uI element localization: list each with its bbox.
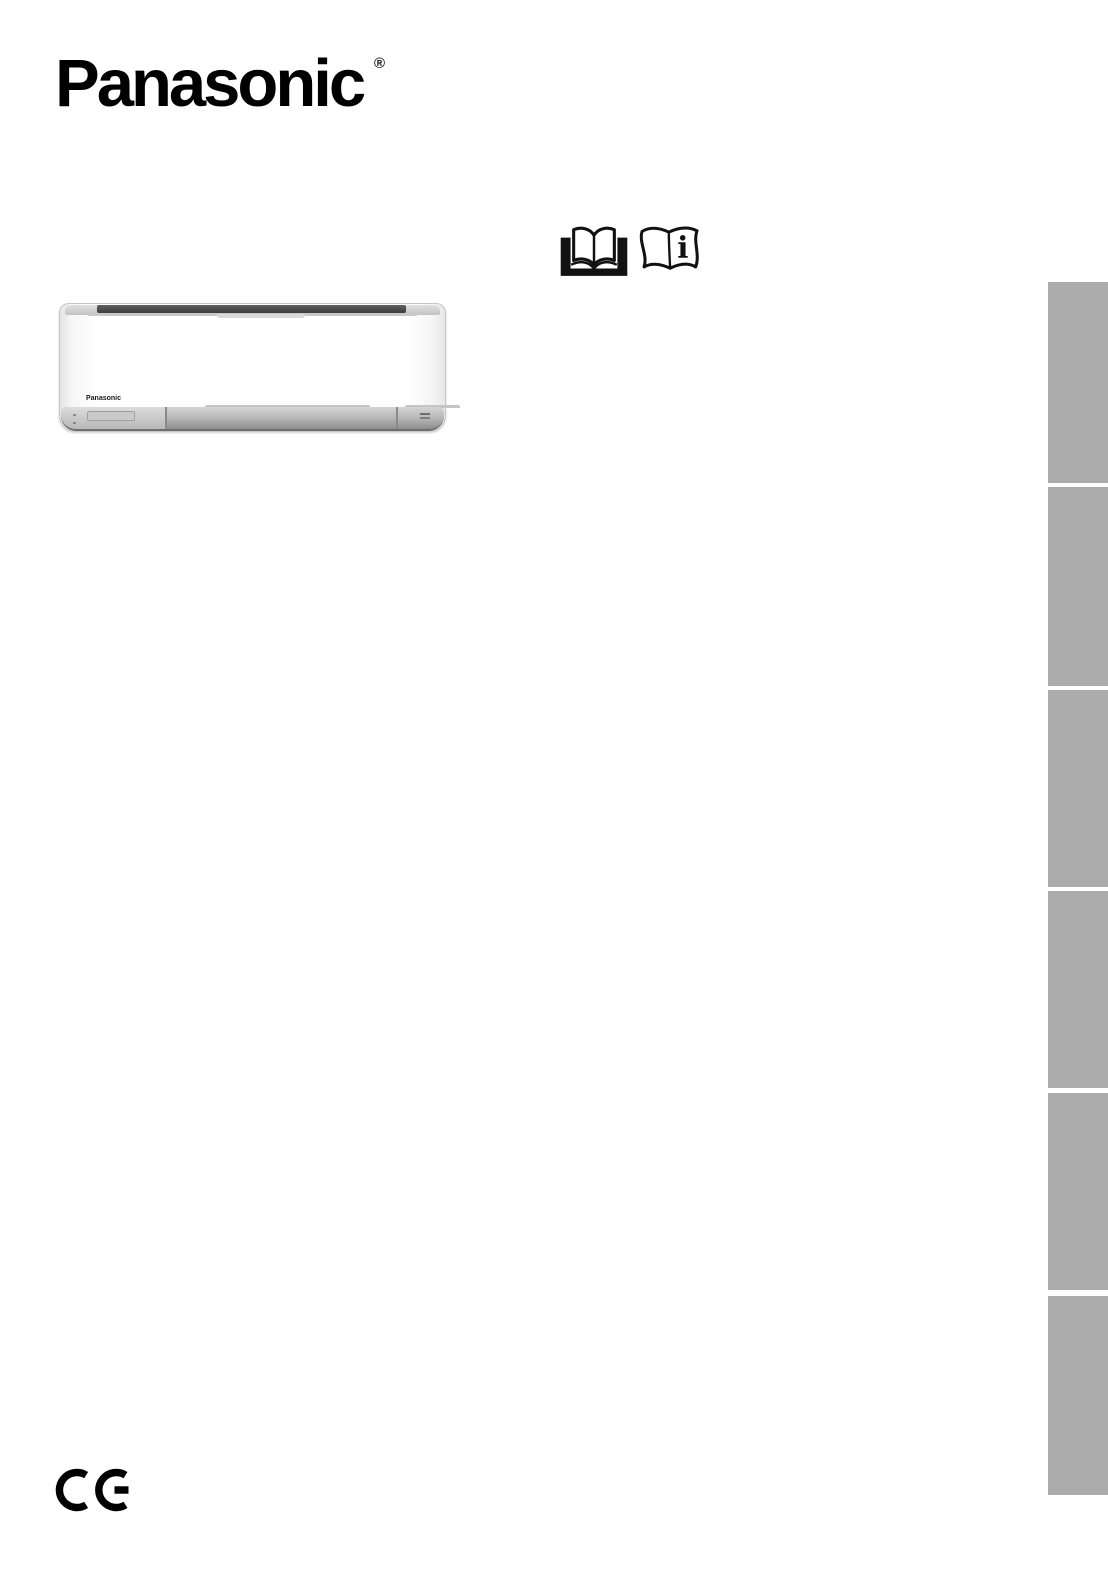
panasonic-logo: Panasonic bbox=[55, 50, 363, 117]
ac-indicator-dot bbox=[73, 414, 76, 416]
manual-index-tab-2 bbox=[1048, 487, 1108, 686]
ac-indicator-dot bbox=[73, 422, 76, 424]
ac-bottom-panel bbox=[61, 407, 444, 431]
manual-index-tab-4 bbox=[1048, 891, 1108, 1088]
ac-air-intake-strip bbox=[97, 305, 406, 313]
air-conditioner-unit-image: Panasonic bbox=[59, 303, 446, 432]
info-letter-glyph: i bbox=[677, 230, 688, 265]
ac-panel-right-section bbox=[396, 407, 444, 429]
ac-panel-left-section bbox=[61, 407, 167, 429]
ac-brand-label: Panasonic bbox=[86, 395, 121, 402]
registered-trademark-symbol: ® bbox=[374, 55, 385, 72]
section-index-tabs bbox=[1048, 0, 1108, 1571]
ac-indicator-marks bbox=[420, 413, 430, 415]
ac-center-notch bbox=[217, 314, 305, 318]
manual-index-tab-1 bbox=[1048, 282, 1108, 483]
read-manual-icon bbox=[557, 221, 631, 279]
manual-index-tab-5 bbox=[1048, 1093, 1108, 1290]
ac-model-sticker bbox=[87, 411, 135, 421]
manual-cover-page: Panasonic ® i Panasonic bbox=[0, 0, 1108, 1571]
ce-mark-icon bbox=[55, 1464, 139, 1516]
info-booklet-icon: i bbox=[636, 222, 703, 277]
manual-index-tab-3 bbox=[1048, 690, 1108, 887]
manual-index-tab-6 bbox=[1048, 1296, 1108, 1495]
